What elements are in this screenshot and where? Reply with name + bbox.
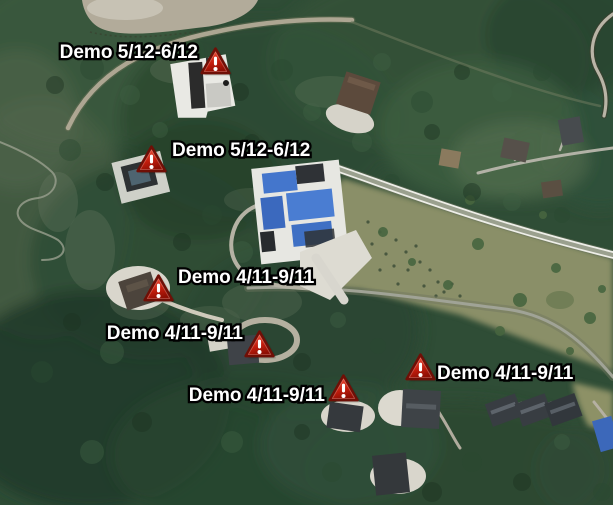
warning-triangle-icon xyxy=(327,372,360,406)
placemark-label[interactable]: Demo 4/11-9/11 xyxy=(178,267,314,289)
warning-placemark[interactable] xyxy=(142,272,175,306)
warning-triangle-icon xyxy=(199,45,232,79)
placemark-label[interactable]: Demo 4/11-9/11 xyxy=(107,323,243,345)
placemark-label[interactable]: Demo 5/12-6/12 xyxy=(172,140,310,162)
warning-triangle-icon xyxy=(135,143,168,177)
placemark-label[interactable]: Demo 4/11-9/11 xyxy=(437,363,573,385)
map-viewport[interactable]: Demo 5/12-6/12Demo 5/12-6/12Demo 4/11-9/… xyxy=(0,0,613,505)
warning-triangle-icon xyxy=(404,351,437,385)
warning-placemark[interactable] xyxy=(135,143,168,177)
warning-placemark[interactable] xyxy=(199,45,232,79)
placemark-label[interactable]: Demo 4/11-9/11 xyxy=(189,385,325,407)
placemarks-layer: Demo 5/12-6/12Demo 5/12-6/12Demo 4/11-9/… xyxy=(0,0,613,505)
warning-triangle-icon xyxy=(142,272,175,306)
warning-placemark[interactable] xyxy=(404,351,437,385)
warning-placemark[interactable] xyxy=(243,328,276,362)
placemark-label[interactable]: Demo 5/12-6/12 xyxy=(60,42,198,64)
warning-placemark[interactable] xyxy=(327,372,360,406)
warning-triangle-icon xyxy=(243,328,276,362)
